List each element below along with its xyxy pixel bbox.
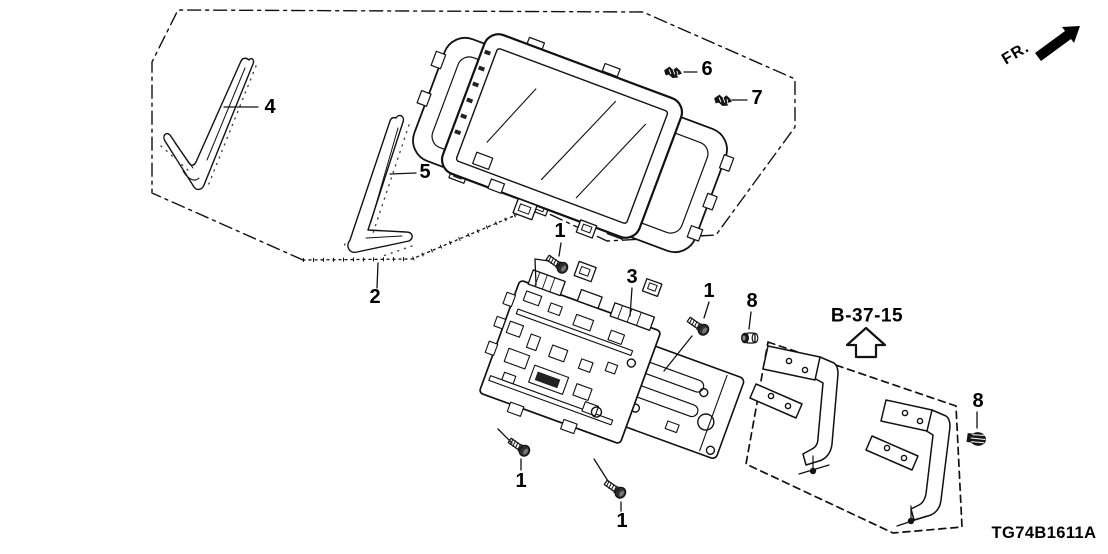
- diagram-code-label: TG74B1611A: [992, 525, 1097, 542]
- callout-part1-right: 1: [703, 281, 714, 301]
- callout-part5: 5: [419, 162, 430, 182]
- garnish-left-drawing: [161, 58, 256, 189]
- front-direction-arrow-icon: [1035, 26, 1080, 61]
- callout-part1-bottom-left: 1: [515, 471, 526, 491]
- garnish-center-drawing: [342, 115, 412, 257]
- bracket-reference-region: [746, 328, 962, 533]
- parts-diagram-page: 4 5 2 6 7 3 1 1 8 8 1 1 B-37-15 FR. TG74…: [0, 0, 1108, 554]
- up-arrow-icon: [847, 328, 885, 357]
- mount-stay-left-drawing: [750, 346, 838, 474]
- callout-part1-bottom-center: 1: [616, 511, 627, 531]
- callout-part4: 4: [264, 97, 275, 117]
- callout-part8-right: 8: [972, 391, 983, 411]
- bolt-left-icon: [741, 333, 758, 344]
- callout-part8-left: 8: [746, 291, 757, 311]
- callout-part1-top: 1: [554, 221, 565, 241]
- mount-stay-right-drawing: [866, 400, 950, 526]
- callout-part6: 6: [701, 59, 712, 79]
- small-screw-upper-icon: [664, 66, 683, 79]
- callout-part2: 2: [369, 287, 380, 307]
- parts-diagram-linework: [0, 0, 1108, 554]
- callout-part7: 7: [751, 88, 762, 108]
- bolt-right-icon: [966, 431, 987, 447]
- small-screw-lower-icon: [714, 94, 733, 107]
- callout-part3: 3: [626, 267, 637, 287]
- reference-code-label: B-37-15: [831, 307, 903, 326]
